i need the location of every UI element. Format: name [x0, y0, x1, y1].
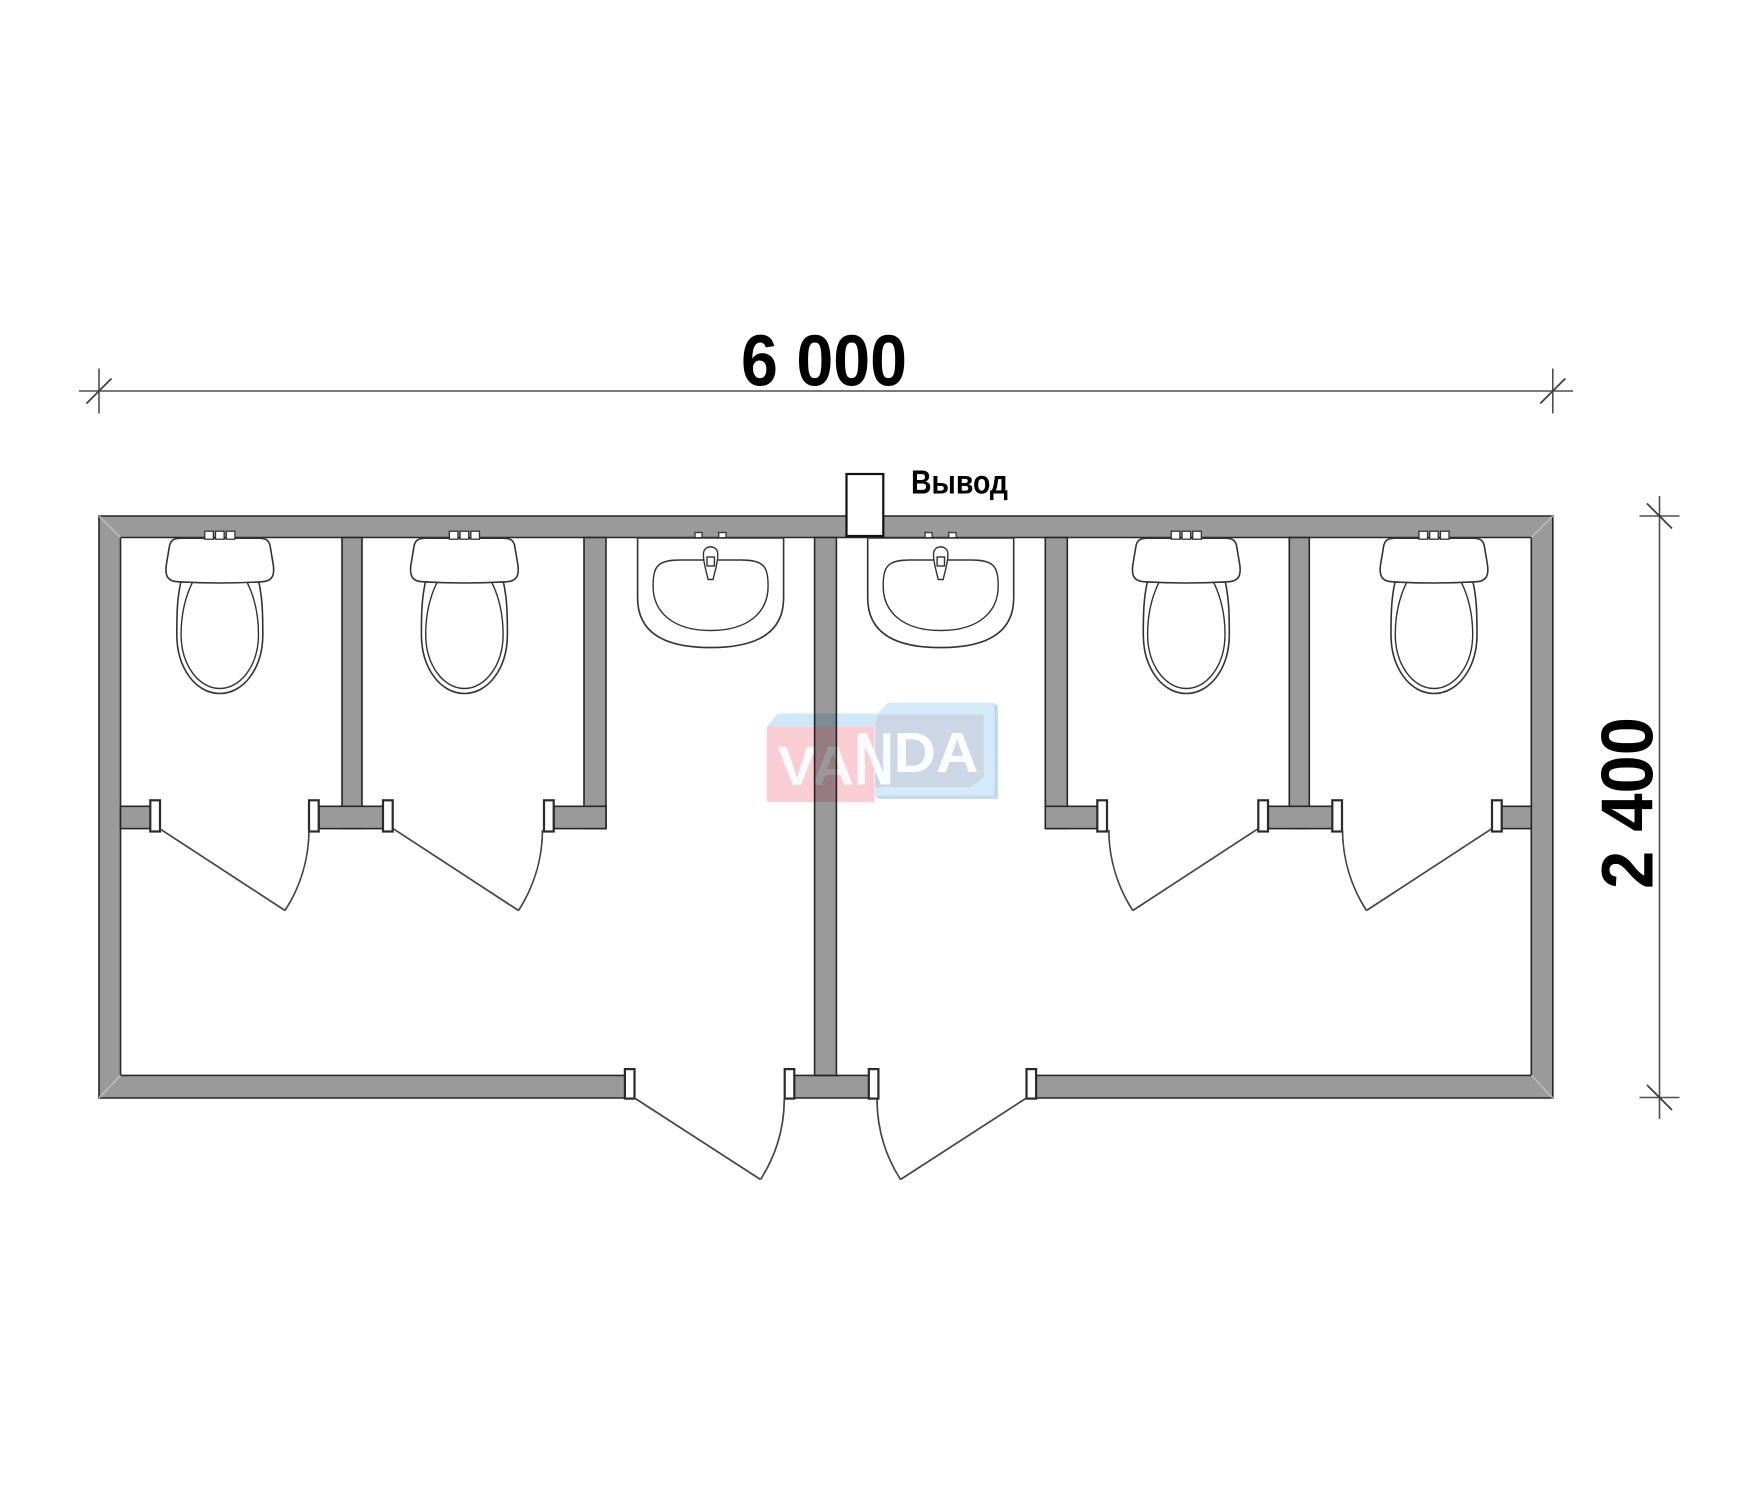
svg-text:6 000: 6 000: [741, 321, 907, 402]
svg-text:N: N: [854, 718, 894, 801]
svg-text:Вывод: Вывод: [911, 464, 1008, 501]
svg-text:VA: VA: [778, 734, 855, 797]
svg-text:2 400: 2 400: [1588, 717, 1669, 889]
svg-text:DA: DA: [894, 721, 979, 785]
